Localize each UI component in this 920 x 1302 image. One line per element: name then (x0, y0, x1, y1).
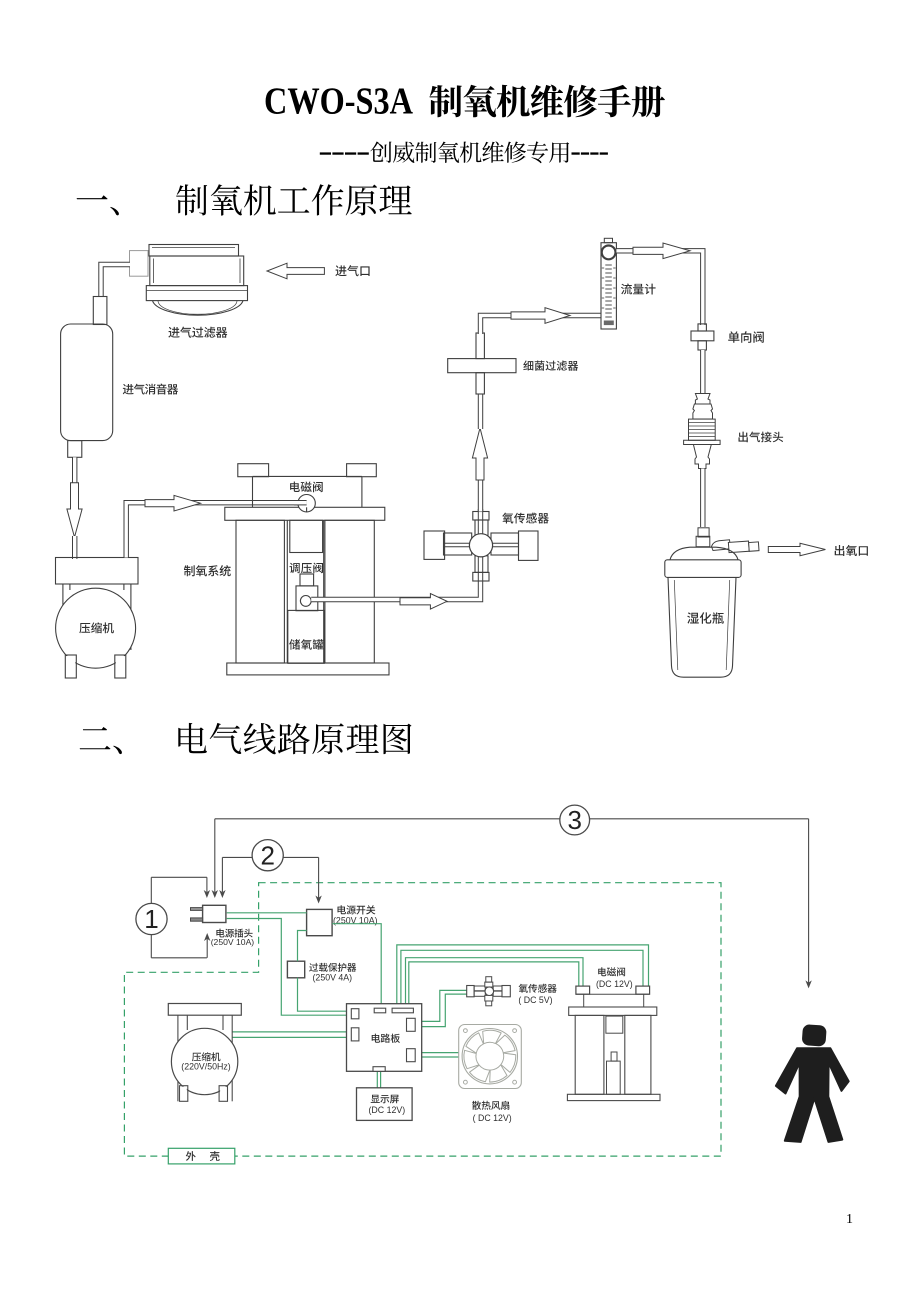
svg-text:1: 1 (144, 904, 158, 934)
svg-text:(DC 12V): (DC 12V) (596, 979, 633, 989)
svg-text:1: 1 (846, 1212, 853, 1227)
svg-text:(250V 10A): (250V 10A) (211, 937, 255, 947)
svg-text:(DC 12V): (DC 12V) (369, 1105, 406, 1115)
svg-text:CWO-S3A: CWO-S3A (264, 80, 413, 122)
svg-text:( DC 12V): ( DC 12V) (473, 1113, 512, 1123)
svg-text:(220V/50Hz): (220V/50Hz) (181, 1062, 230, 1072)
svg-text:(250V 4A): (250V 4A) (313, 973, 353, 983)
svg-text:2: 2 (260, 840, 274, 870)
svg-text:3: 3 (567, 805, 581, 835)
svg-text:( DC 5V): ( DC 5V) (518, 995, 552, 1005)
